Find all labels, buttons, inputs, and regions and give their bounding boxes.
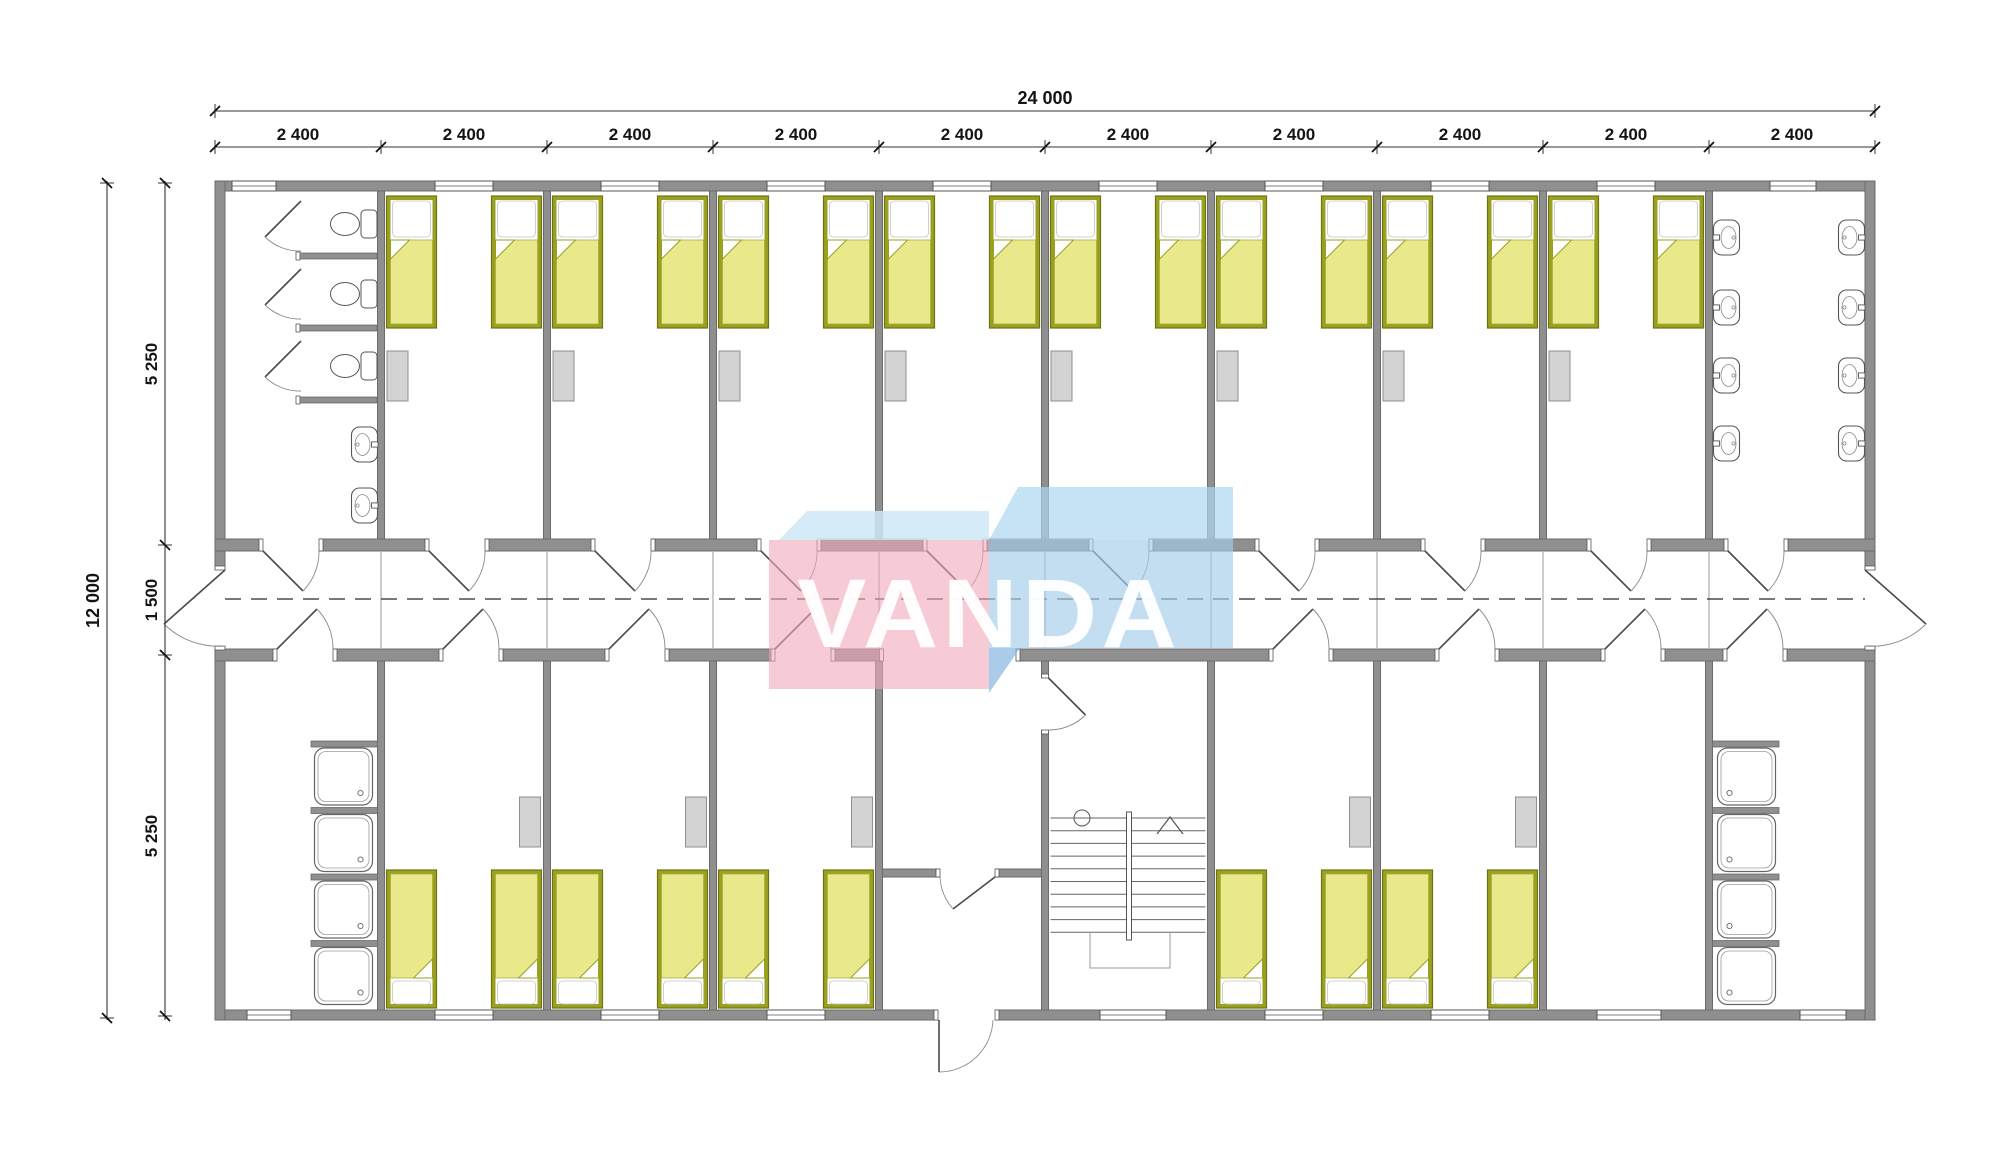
bay-wall-top bbox=[710, 191, 717, 539]
sink bbox=[1839, 426, 1866, 461]
door-swing-arc bbox=[1767, 609, 1783, 649]
bed bbox=[492, 196, 542, 328]
sink bbox=[1839, 358, 1866, 393]
bed-pillow bbox=[1223, 981, 1261, 1004]
sink-tap bbox=[1859, 373, 1866, 378]
wall-end-cap bbox=[273, 649, 277, 661]
wall-end-cap bbox=[995, 1010, 999, 1020]
dimension-label: 2 400 bbox=[277, 125, 320, 144]
sink-tap bbox=[1859, 441, 1866, 446]
wall-opening bbox=[595, 538, 651, 551]
shower-tray-rim bbox=[315, 748, 373, 805]
sink-tap bbox=[1713, 441, 1720, 446]
toilet bbox=[331, 210, 378, 238]
bay-wall-top bbox=[1042, 191, 1049, 539]
door-swing-arc bbox=[265, 305, 301, 319]
bed-pillow bbox=[1162, 201, 1200, 237]
wall-end-cap bbox=[1269, 649, 1273, 661]
bed-pillow bbox=[1389, 981, 1427, 1004]
bed-pillow bbox=[1555, 201, 1593, 237]
wall-end-cap bbox=[425, 539, 429, 551]
dimension-label: 2 400 bbox=[1605, 125, 1648, 144]
floor-plan-svg: 24 0002 4002 4002 4002 4002 4002 4002 40… bbox=[0, 0, 2000, 1175]
shower-divider bbox=[1713, 741, 1780, 747]
dimension-label: 24 000 bbox=[1017, 88, 1072, 108]
wall-end-cap bbox=[1481, 539, 1485, 551]
door-leaf bbox=[1259, 551, 1299, 591]
door-swing-arc bbox=[265, 377, 301, 391]
door-swing-arc bbox=[1645, 609, 1661, 649]
wall-end-cap bbox=[591, 539, 595, 551]
dimension-label: 2 400 bbox=[1771, 125, 1814, 144]
wall-end-cap bbox=[1865, 566, 1875, 570]
bay-wall-bottom bbox=[1706, 661, 1713, 1010]
bed-pillow bbox=[664, 981, 702, 1004]
door-swing-arc bbox=[1313, 609, 1329, 649]
wall-end-cap bbox=[1723, 649, 1727, 661]
toilet-tank bbox=[361, 210, 377, 238]
door-leaf bbox=[429, 551, 469, 591]
shower-tray bbox=[1718, 881, 1776, 938]
logo-wordmark: VANDA bbox=[797, 559, 1181, 668]
shower-tray-rim bbox=[1718, 881, 1776, 938]
door-leaf bbox=[265, 201, 301, 237]
wall-opening bbox=[609, 648, 665, 661]
bed bbox=[387, 196, 437, 328]
stall-wall bbox=[300, 325, 377, 331]
wall-end-cap bbox=[1495, 649, 1499, 661]
bed-blanket bbox=[1221, 874, 1263, 978]
bed-pillow bbox=[498, 201, 536, 237]
bed-pillow bbox=[393, 201, 431, 237]
wall-end-cap bbox=[1601, 649, 1605, 661]
wall-opening bbox=[1273, 648, 1329, 661]
bed bbox=[658, 196, 708, 328]
bed bbox=[719, 196, 769, 328]
sink bbox=[352, 488, 379, 523]
wardrobe-locker bbox=[1350, 797, 1371, 847]
door-swing-arc bbox=[303, 551, 319, 591]
wall-end-cap bbox=[1587, 539, 1591, 551]
wardrobe-locker bbox=[885, 351, 906, 401]
door-swing-arc bbox=[1768, 551, 1784, 591]
wall-end-cap bbox=[296, 396, 300, 404]
floor-plan-canvas: 24 0002 4002 4002 4002 4002 4002 4002 40… bbox=[0, 0, 2000, 1175]
wall-end-cap bbox=[333, 649, 337, 661]
stall-wall bbox=[300, 397, 377, 403]
stall-wall bbox=[300, 253, 377, 259]
wardrobe-locker bbox=[387, 351, 408, 401]
bed bbox=[824, 196, 874, 328]
bed-pillow bbox=[725, 201, 763, 237]
bed bbox=[1156, 196, 1206, 328]
sink-tap bbox=[1713, 235, 1720, 240]
wall-opening bbox=[1727, 648, 1783, 661]
shower-tray bbox=[315, 748, 373, 805]
wall-opening bbox=[277, 648, 333, 661]
wall-end-cap bbox=[1784, 539, 1788, 551]
staircase bbox=[1051, 810, 1206, 968]
bay-wall-bottom bbox=[378, 661, 385, 1010]
bed bbox=[387, 870, 437, 1008]
shower-tray bbox=[1718, 948, 1776, 1005]
bay-wall-top bbox=[378, 191, 385, 539]
bed-pillow bbox=[559, 201, 597, 237]
wall-end-cap bbox=[296, 324, 300, 332]
sink-tap bbox=[372, 503, 379, 508]
door-swing-arc bbox=[940, 877, 953, 909]
toilet-bowl bbox=[331, 355, 360, 378]
wall-end-cap bbox=[215, 566, 225, 570]
sink bbox=[352, 427, 379, 462]
wardrobe-locker bbox=[1217, 351, 1238, 401]
bed bbox=[1383, 196, 1433, 328]
door-swing-arc bbox=[1049, 715, 1086, 730]
wall-end-cap bbox=[1329, 649, 1333, 661]
door-leaf bbox=[277, 609, 317, 649]
door-leaf bbox=[265, 341, 301, 377]
wall-end-cap bbox=[1421, 539, 1425, 551]
wardrobe-locker bbox=[1516, 797, 1537, 847]
wall-opening bbox=[1439, 648, 1495, 661]
wall-opening bbox=[214, 570, 225, 646]
shower-divider bbox=[311, 941, 378, 947]
wall-opening bbox=[1591, 538, 1647, 551]
bed bbox=[824, 870, 874, 1008]
bed bbox=[1488, 870, 1538, 1008]
sink bbox=[1713, 358, 1740, 393]
wall-end-cap bbox=[651, 539, 655, 551]
bed-blanket bbox=[662, 874, 704, 978]
bed-blanket bbox=[828, 874, 870, 978]
bay-wall-top bbox=[1706, 191, 1713, 539]
door-swing-arc bbox=[265, 237, 301, 251]
bed-pillow bbox=[1057, 201, 1095, 237]
bed-blanket bbox=[723, 874, 765, 978]
bed-pillow bbox=[996, 201, 1034, 237]
stair-handrail bbox=[1127, 812, 1132, 940]
shower-tray-rim bbox=[1718, 748, 1776, 805]
bed-pillow bbox=[830, 981, 868, 1004]
bed-pillow bbox=[1328, 981, 1366, 1004]
bay-wall-top bbox=[1540, 191, 1547, 539]
sink-tap bbox=[372, 442, 379, 447]
wall-opening bbox=[938, 1009, 995, 1020]
door-leaf bbox=[1273, 609, 1313, 649]
door-leaf bbox=[595, 551, 635, 591]
bay-wall-top bbox=[876, 191, 883, 539]
bed bbox=[1322, 196, 1372, 328]
bed-pillow bbox=[498, 981, 536, 1004]
wall-end-cap bbox=[1042, 730, 1049, 734]
bay-wall-bottom bbox=[876, 661, 883, 1010]
shower-tray bbox=[1718, 815, 1776, 872]
bed bbox=[1549, 196, 1599, 328]
bed-pillow bbox=[891, 201, 929, 237]
bed-pillow bbox=[1660, 201, 1698, 237]
wall-end-cap bbox=[995, 869, 999, 877]
bed bbox=[1383, 870, 1433, 1008]
bed bbox=[990, 196, 1040, 328]
dimension-label: 2 400 bbox=[1107, 125, 1150, 144]
toilet-bowl bbox=[331, 213, 360, 236]
bed bbox=[1217, 870, 1267, 1008]
toilet-tank bbox=[361, 280, 377, 308]
wall-opening bbox=[429, 538, 485, 551]
bed bbox=[885, 196, 935, 328]
dimension-label: 2 400 bbox=[941, 125, 984, 144]
door-leaf bbox=[443, 609, 483, 649]
shower-divider bbox=[1713, 808, 1780, 814]
wardrobe-locker bbox=[553, 351, 574, 401]
bed bbox=[1217, 196, 1267, 328]
sink-tap bbox=[1713, 373, 1720, 378]
bed-blanket bbox=[391, 874, 433, 978]
wall-opening bbox=[1259, 538, 1315, 551]
door-leaf bbox=[265, 269, 301, 305]
door-swing-arc bbox=[649, 609, 665, 649]
sink-tap bbox=[1859, 305, 1866, 310]
bed-pillow bbox=[664, 201, 702, 237]
wall-end-cap bbox=[605, 649, 609, 661]
bay-wall-bottom bbox=[1208, 661, 1215, 1010]
bed-pillow bbox=[559, 981, 597, 1004]
door-leaf bbox=[263, 551, 303, 591]
wall-end-cap bbox=[485, 539, 489, 551]
bed-blanket bbox=[496, 874, 538, 978]
logo-blue-top-face bbox=[989, 487, 1233, 540]
wardrobe-locker bbox=[520, 797, 541, 847]
door-leaf bbox=[1049, 678, 1086, 715]
wall-opening bbox=[1041, 678, 1049, 730]
wall-end-cap bbox=[757, 539, 761, 551]
bed bbox=[1654, 196, 1704, 328]
wall-end-cap bbox=[1661, 649, 1665, 661]
wall-end-cap bbox=[259, 539, 263, 551]
dimension-label: 2 400 bbox=[443, 125, 486, 144]
shower-tray-rim bbox=[1718, 815, 1776, 872]
shower-tray bbox=[1718, 748, 1776, 805]
vanda-logo: VANDA bbox=[769, 487, 1233, 693]
wall-end-cap bbox=[665, 649, 669, 661]
door-swing-arc bbox=[317, 609, 333, 649]
door-swing-arc bbox=[1465, 551, 1481, 591]
wall-end-cap bbox=[1435, 649, 1439, 661]
wall-opening bbox=[1605, 648, 1661, 661]
dimension-label: 12 000 bbox=[83, 573, 103, 628]
door-leaf bbox=[1728, 551, 1768, 591]
bed-pillow bbox=[1328, 201, 1366, 237]
door-swing-arc bbox=[1631, 551, 1647, 591]
shower-divider bbox=[311, 741, 378, 747]
shower-tray-rim bbox=[315, 815, 373, 872]
dimension-label: 2 400 bbox=[609, 125, 652, 144]
door-leaf bbox=[1425, 551, 1465, 591]
dimension-label: 1 500 bbox=[142, 579, 161, 622]
bed-pillow bbox=[725, 981, 763, 1004]
wall-end-cap bbox=[319, 539, 323, 551]
dimension-label: 2 400 bbox=[775, 125, 818, 144]
wardrobe-locker bbox=[1051, 351, 1072, 401]
bed-pillow bbox=[1389, 201, 1427, 237]
sink bbox=[1713, 220, 1740, 255]
toilet-tank bbox=[361, 352, 377, 380]
bay-wall-bottom bbox=[1540, 661, 1547, 1010]
door-leaf bbox=[1591, 551, 1631, 591]
bed-blanket bbox=[1326, 874, 1368, 978]
bed-blanket bbox=[1492, 874, 1534, 978]
wall-end-cap bbox=[1315, 539, 1319, 551]
shower-divider bbox=[311, 808, 378, 814]
wall-end-cap bbox=[936, 869, 940, 877]
bed-pillow bbox=[1494, 201, 1532, 237]
wall-opening bbox=[1864, 570, 1875, 646]
wall-end-cap bbox=[934, 1010, 938, 1020]
wall-opening bbox=[263, 538, 319, 551]
sink-tap bbox=[1859, 235, 1866, 240]
sink bbox=[1839, 290, 1866, 325]
wall-end-cap bbox=[296, 252, 300, 260]
door-leaf bbox=[1605, 609, 1645, 649]
bed bbox=[492, 870, 542, 1008]
sink bbox=[1839, 220, 1866, 255]
bay-wall-bottom bbox=[1374, 661, 1381, 1010]
dimension-label: 5 250 bbox=[142, 815, 161, 858]
dimension-label: 2 400 bbox=[1273, 125, 1316, 144]
wall-opening bbox=[443, 648, 499, 661]
shower-tray-rim bbox=[315, 881, 373, 938]
bay-wall-top bbox=[1374, 191, 1381, 539]
sink-tap bbox=[1713, 305, 1720, 310]
door-leaf bbox=[1439, 609, 1479, 649]
bed-pillow bbox=[1494, 981, 1532, 1004]
door-leaf bbox=[1727, 609, 1767, 649]
shower-tray-rim bbox=[1718, 948, 1776, 1005]
shower-divider bbox=[1713, 941, 1780, 947]
dimension-label: 2 400 bbox=[1439, 125, 1482, 144]
sink bbox=[1713, 426, 1740, 461]
wall-opening bbox=[1425, 538, 1481, 551]
toilet bbox=[331, 280, 378, 308]
toilet bbox=[331, 352, 378, 380]
door-leaf bbox=[953, 877, 995, 909]
bay-wall-top bbox=[1208, 191, 1215, 539]
bay-wall-top bbox=[544, 191, 551, 539]
wardrobe-locker bbox=[852, 797, 873, 847]
bed bbox=[1488, 196, 1538, 328]
door-swing-arc bbox=[635, 551, 651, 591]
door-swing-arc bbox=[1299, 551, 1315, 591]
toilet-bowl bbox=[331, 283, 360, 306]
bed-pillow bbox=[393, 981, 431, 1004]
wardrobe-locker bbox=[1549, 351, 1570, 401]
bay-wall-bottom bbox=[710, 661, 717, 1010]
wall-opening bbox=[1728, 538, 1784, 551]
bed-blanket bbox=[557, 874, 599, 978]
bed-pillow bbox=[1223, 201, 1261, 237]
shower-tray bbox=[315, 881, 373, 938]
shower-tray-rim bbox=[315, 948, 373, 1005]
bed bbox=[1051, 196, 1101, 328]
wall-end-cap bbox=[499, 649, 503, 661]
bed bbox=[658, 870, 708, 1008]
door-leaf bbox=[609, 609, 649, 649]
bed bbox=[1322, 870, 1372, 1008]
shower-tray bbox=[315, 815, 373, 872]
door-swing-arc bbox=[469, 551, 485, 591]
logo-top-band bbox=[779, 511, 989, 540]
bed-blanket bbox=[1387, 874, 1429, 978]
dimension-label: 5 250 bbox=[142, 343, 161, 386]
shower-divider bbox=[1713, 874, 1780, 880]
bed bbox=[553, 870, 603, 1008]
wall-end-cap bbox=[1647, 539, 1651, 551]
wall-end-cap bbox=[1042, 674, 1049, 678]
wardrobe-locker bbox=[686, 797, 707, 847]
bed-pillow bbox=[830, 201, 868, 237]
door-swing-arc bbox=[1479, 609, 1495, 649]
wall-end-cap bbox=[439, 649, 443, 661]
wall-end-cap bbox=[1255, 539, 1259, 551]
shower-tray bbox=[315, 948, 373, 1005]
wardrobe-locker bbox=[719, 351, 740, 401]
sink bbox=[1713, 290, 1740, 325]
wall-end-cap bbox=[1724, 539, 1728, 551]
bed bbox=[719, 870, 769, 1008]
stair-up-arrow bbox=[1157, 817, 1183, 834]
bay-wall-bottom bbox=[544, 661, 551, 1010]
wall-opening bbox=[940, 868, 995, 877]
bed bbox=[553, 196, 603, 328]
shower-divider bbox=[311, 874, 378, 880]
wall-end-cap bbox=[1783, 649, 1787, 661]
door-swing-arc bbox=[483, 609, 499, 649]
wardrobe-locker bbox=[1383, 351, 1404, 401]
door-swing-arc bbox=[939, 1020, 993, 1072]
